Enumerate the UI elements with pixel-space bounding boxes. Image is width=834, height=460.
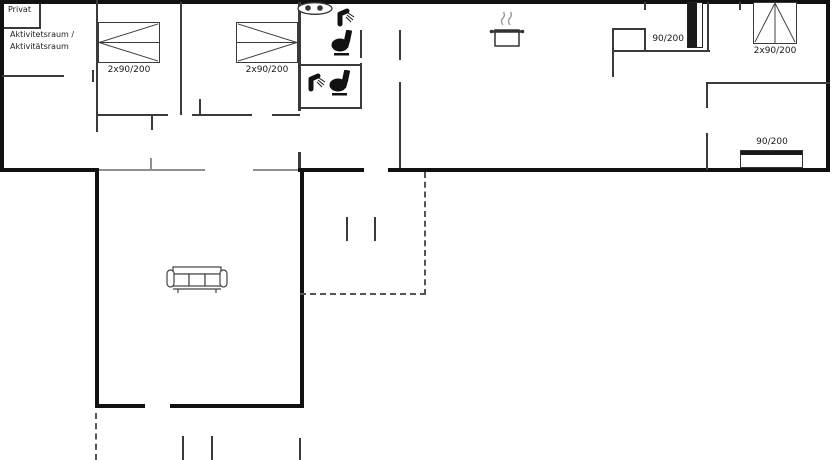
double-bed-symbol (236, 22, 298, 63)
cooking-pot-icon (486, 8, 528, 50)
wall-bathroom-divider (300, 64, 362, 66)
bed-size-label: 2x90/200 (746, 47, 804, 56)
bed-size-label: 2x90/200 (232, 66, 302, 75)
wall-smallroom-right (707, 2, 709, 52)
wall-bathroom-right-b (360, 63, 362, 109)
wall-livingroom-left (95, 168, 99, 408)
open-boundary-a (99, 169, 205, 171)
terrace-dashed-right (424, 172, 426, 295)
terrace-door-mark (374, 217, 376, 241)
wall-bathroom-right-a (360, 30, 362, 58)
open-boundary-jamb (150, 158, 152, 169)
wall-bottom-right-segment (388, 168, 830, 172)
wall-bottomright-left-b (706, 133, 708, 170)
bed-size-label: 2x90/200 (94, 66, 164, 75)
open-boundary-b (253, 169, 298, 171)
wall-kitchen-left-a (399, 30, 401, 60)
wall-topright-bedroom-jamb (739, 2, 741, 10)
wall-kitchen-left-b (399, 82, 401, 168)
wall-corridor-a (96, 114, 168, 116)
wall-bottomright-left-a (706, 82, 708, 108)
wall-activityroom-bottom (2, 75, 64, 77)
wall-door-jamb (199, 99, 201, 114)
wall-livingroom-right (300, 168, 304, 408)
double-bed-symbol (98, 22, 160, 63)
porch-post-mark (182, 436, 184, 460)
terrace-door-mark (346, 217, 348, 241)
wall-livingroom-bottom-a (95, 404, 145, 408)
shower-icon (303, 72, 327, 96)
wall-wc2-bottom (300, 107, 362, 109)
shower-icon (332, 8, 356, 30)
activity-room-label-line2: Aktivitätsraum (10, 42, 69, 51)
bed-size-label: 90/200 (646, 35, 684, 44)
sofa-icon (166, 264, 228, 298)
wall-outer-top (0, 0, 830, 4)
wall-outer-right (826, 0, 830, 172)
activity-room-label-line1: Aktivitetsraum / (10, 30, 74, 39)
private-closet-box: Privat (4, 4, 41, 29)
privat-label: Privat (4, 4, 39, 14)
single-bed-symbol (687, 2, 703, 48)
porch-post-mark (299, 438, 301, 460)
porch-dashed-left (95, 413, 97, 460)
wall-rightrooms-divider (707, 82, 830, 84)
wall-corridor-c (272, 114, 300, 116)
wall-bottom-left-segment (0, 168, 99, 172)
wall-smallroom-top (612, 28, 646, 30)
wall-livingroom-bottom-b (170, 404, 304, 408)
porch-post-mark (211, 436, 213, 460)
wall-bathroom-left-b (298, 152, 301, 168)
wall-bathroom-left-a (298, 2, 301, 111)
double-bed-symbol (753, 2, 797, 44)
single-bed-symbol (740, 150, 803, 168)
bed-size-label: 90/200 (744, 138, 800, 147)
toilet-icon (330, 30, 355, 56)
wall-bottom-mid-segment (298, 168, 364, 172)
floor-plan: Privat Aktivitetsraum / Aktivitätsraum 2… (0, 0, 834, 460)
wall-door-jamb (151, 114, 153, 130)
activity-room-label: Aktivitetsraum / Aktivitätsraum (10, 29, 74, 53)
wall-corridor-b (192, 114, 252, 116)
washbasin-icon (297, 2, 333, 15)
wall-smallroom-left-tick (644, 2, 646, 10)
toilet-icon (328, 70, 353, 96)
wall-bedroom-divider (180, 2, 182, 115)
wall-smallroom-bottom (612, 50, 710, 52)
terrace-dashed-bottom (300, 293, 426, 295)
wall-hall-right (612, 28, 614, 77)
